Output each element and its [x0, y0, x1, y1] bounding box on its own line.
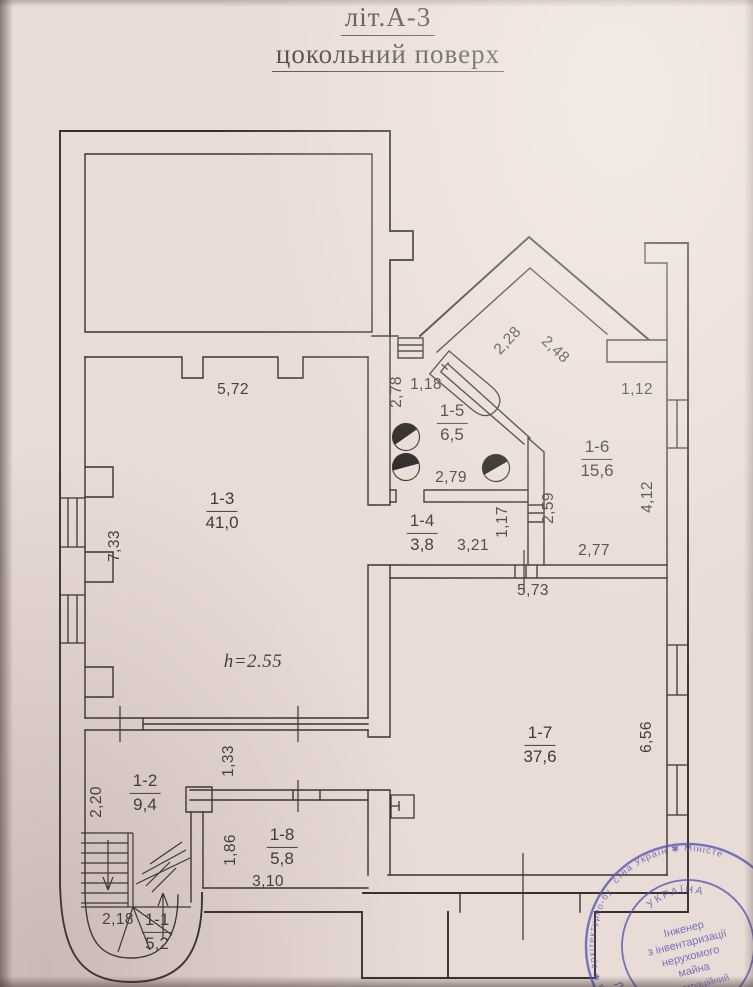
room-label-1-7: 1-7 37,6 — [523, 722, 556, 768]
ceiling-height-note: h=2.55 — [224, 651, 283, 673]
room-1-2-area: 9,4 — [130, 794, 161, 816]
room-1-8-id: 1-8 — [267, 824, 298, 848]
room-1-7-id: 1-7 — [525, 722, 556, 746]
meter-box-icon — [391, 795, 414, 818]
dim-5-72-label: 5,72 — [217, 381, 249, 399]
wall-1-6-1-7 — [390, 565, 667, 578]
room-label-1-3: 1-3 41,0 — [205, 488, 238, 534]
dim-1-86-label: 1,86 — [222, 834, 240, 866]
dim-4-12-label: 4,12 — [639, 481, 657, 513]
vent-shaft-icon — [478, 450, 515, 487]
dim-7-33-label: 7,33 — [106, 530, 124, 562]
axis-ticks — [120, 550, 524, 940]
room-1-6-area: 15,6 — [580, 460, 613, 482]
room-1-2-id: 1-2 — [130, 770, 161, 794]
left-wall-inner — [85, 357, 113, 833]
vent-shaft-icon — [387, 418, 425, 456]
room-1-4-area: 3,8 — [407, 534, 438, 556]
drawing-title: літ.А-3 цокольний поверх — [272, 3, 504, 72]
dim-2-79-label: 2,79 — [435, 469, 467, 487]
room-label-1-1: 1-1 5,2 — [142, 909, 173, 955]
room-1-1-area: 5,2 — [142, 933, 173, 955]
room-1-6-id: 1-6 — [582, 436, 613, 460]
right-wall-inner — [645, 243, 667, 875]
wall-1-8-left — [191, 812, 203, 902]
title-line-2: цокольний поверх — [272, 40, 504, 73]
room-label-1-8: 1-8 5,8 — [267, 824, 298, 870]
dim-1-18-label: 1,18 — [410, 376, 442, 394]
scanned-floor-plan-page: літ.А-3 цокольний поверх — [0, 0, 753, 987]
dim-2-59-label: 2,59 — [540, 492, 558, 524]
vent-shaft-icon — [389, 450, 422, 483]
round-stamp: УКРАЇНА Інженер з інвентаризації нерухом… — [564, 821, 753, 987]
dim-5-73-label: 5,73 — [517, 582, 549, 600]
axis-tick-marks — [120, 550, 524, 940]
dim-1-12-label: 1,12 — [621, 381, 653, 399]
stamp-country-arc: УКРАЇНА — [642, 878, 708, 912]
title-line-1: літ.А-3 — [341, 3, 435, 36]
room-label-1-4: 1-4 3,8 — [407, 510, 438, 556]
dim-3-21-label: 3,21 — [457, 537, 489, 555]
wall-B-corridor — [186, 787, 368, 812]
room-1-3-right-wall — [368, 336, 390, 875]
dim-2-20-label: 2,20 — [88, 786, 106, 818]
room-1-8-area: 5,8 — [267, 848, 298, 870]
room-label-1-5: 1-5 6,5 — [437, 400, 468, 446]
right-wall-window-icon — [667, 400, 688, 815]
dim-1-17-label: 1,17 — [494, 506, 512, 538]
room-1-3-id: 1-3 — [207, 488, 238, 512]
dim-3-10-label: 3,10 — [252, 873, 284, 891]
stair-treads — [81, 833, 191, 952]
room-1-5-id: 1-5 — [437, 400, 468, 424]
dim-2-77-label: 2,77 — [578, 542, 610, 560]
room-label-1-6: 1-6 15,6 — [580, 436, 613, 482]
room-label-1-2: 1-2 9,4 — [130, 770, 161, 816]
window-top-small — [398, 338, 423, 358]
room-1-5-area: 6,5 — [437, 424, 468, 446]
room-1-1-id: 1-1 — [142, 909, 173, 933]
wall-1-4-1-5 — [390, 490, 528, 502]
room-1-4-id: 1-4 — [407, 510, 438, 534]
top-room-inner — [85, 154, 398, 336]
dim-1-33-label: 1,33 — [220, 745, 238, 777]
stairs-down-arrow-icon — [103, 840, 113, 890]
wall-A-1-3-1-2 — [85, 718, 368, 730]
room-1-3-top-wall-with-pilasters — [85, 357, 368, 378]
room-1-3-area: 41,0 — [205, 512, 238, 534]
room-1-7-area: 37,6 — [523, 746, 556, 768]
dim-2-18-label: 2,18 — [102, 911, 134, 929]
left-wall-window-icon — [60, 498, 85, 643]
dim-6-56-label: 6,56 — [638, 721, 656, 753]
stairs — [81, 833, 191, 952]
dim-2-78-label: 2,78 — [388, 376, 406, 408]
